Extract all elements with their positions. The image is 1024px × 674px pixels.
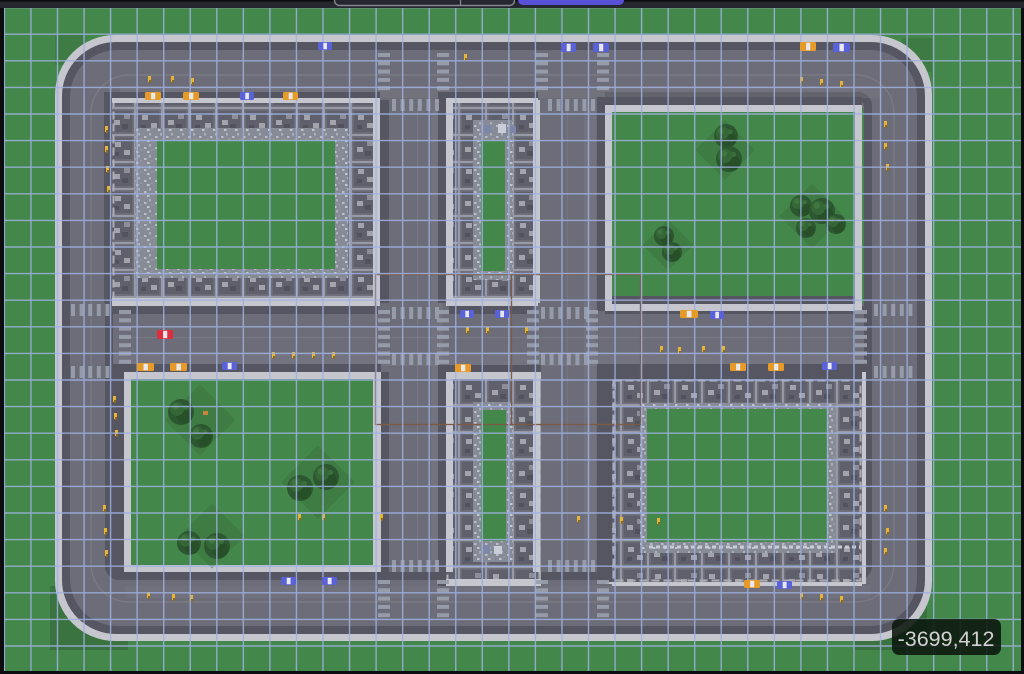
svg-text:-3699,412: -3699,412 [898, 627, 995, 651]
